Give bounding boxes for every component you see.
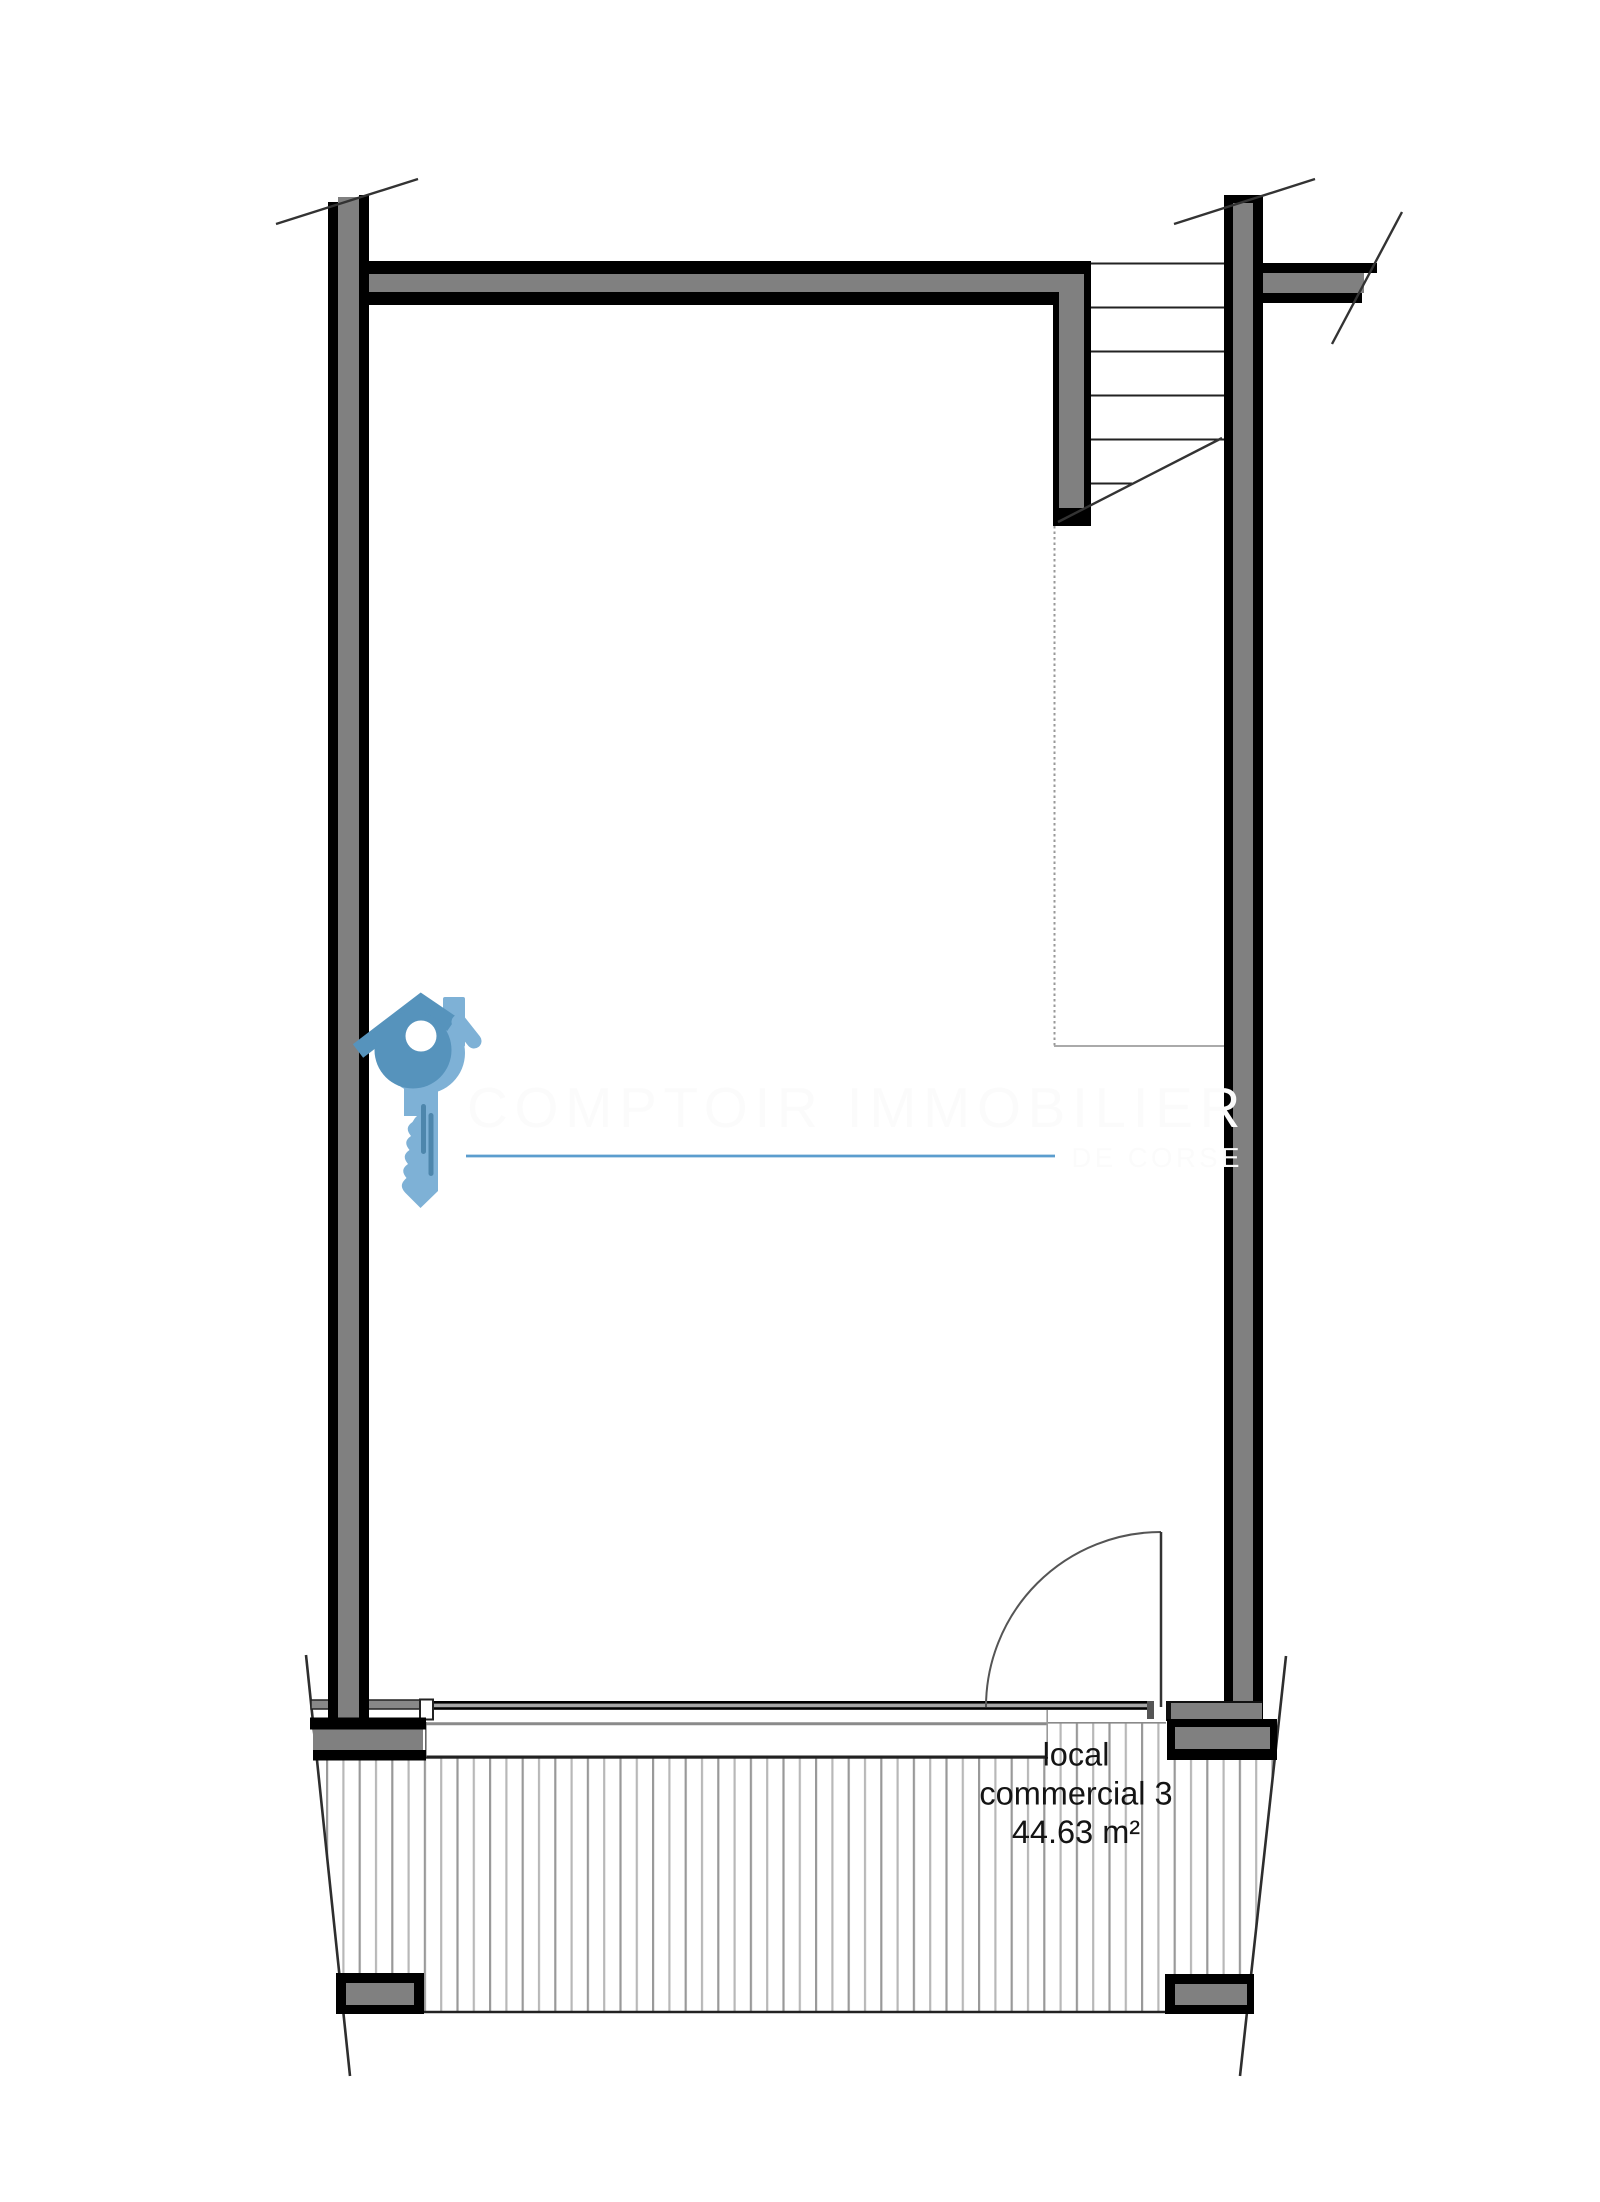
svg-text:44.63 m²: 44.63 m² bbox=[1012, 1814, 1140, 1850]
svg-text:commercial 3: commercial 3 bbox=[979, 1776, 1172, 1812]
svg-text:COMPTOIR IMMOBILIER: COMPTOIR IMMOBILIER bbox=[467, 1076, 1247, 1139]
svg-text:DE CORSE: DE CORSE bbox=[1071, 1142, 1243, 1173]
svg-text:local: local bbox=[1043, 1737, 1110, 1773]
